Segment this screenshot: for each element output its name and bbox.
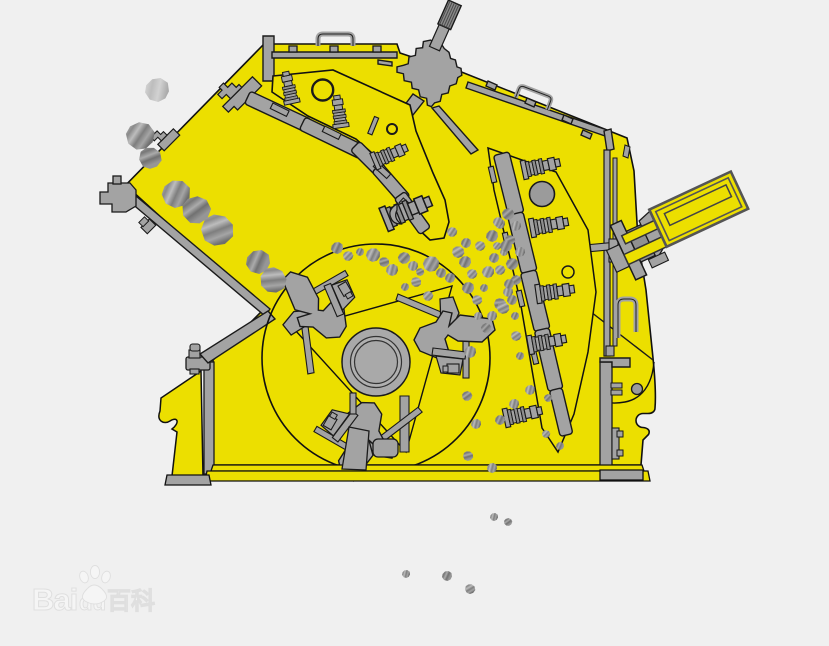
svg-text:百科: 百科 xyxy=(107,588,155,615)
svg-text:Bai: Bai xyxy=(32,582,77,617)
